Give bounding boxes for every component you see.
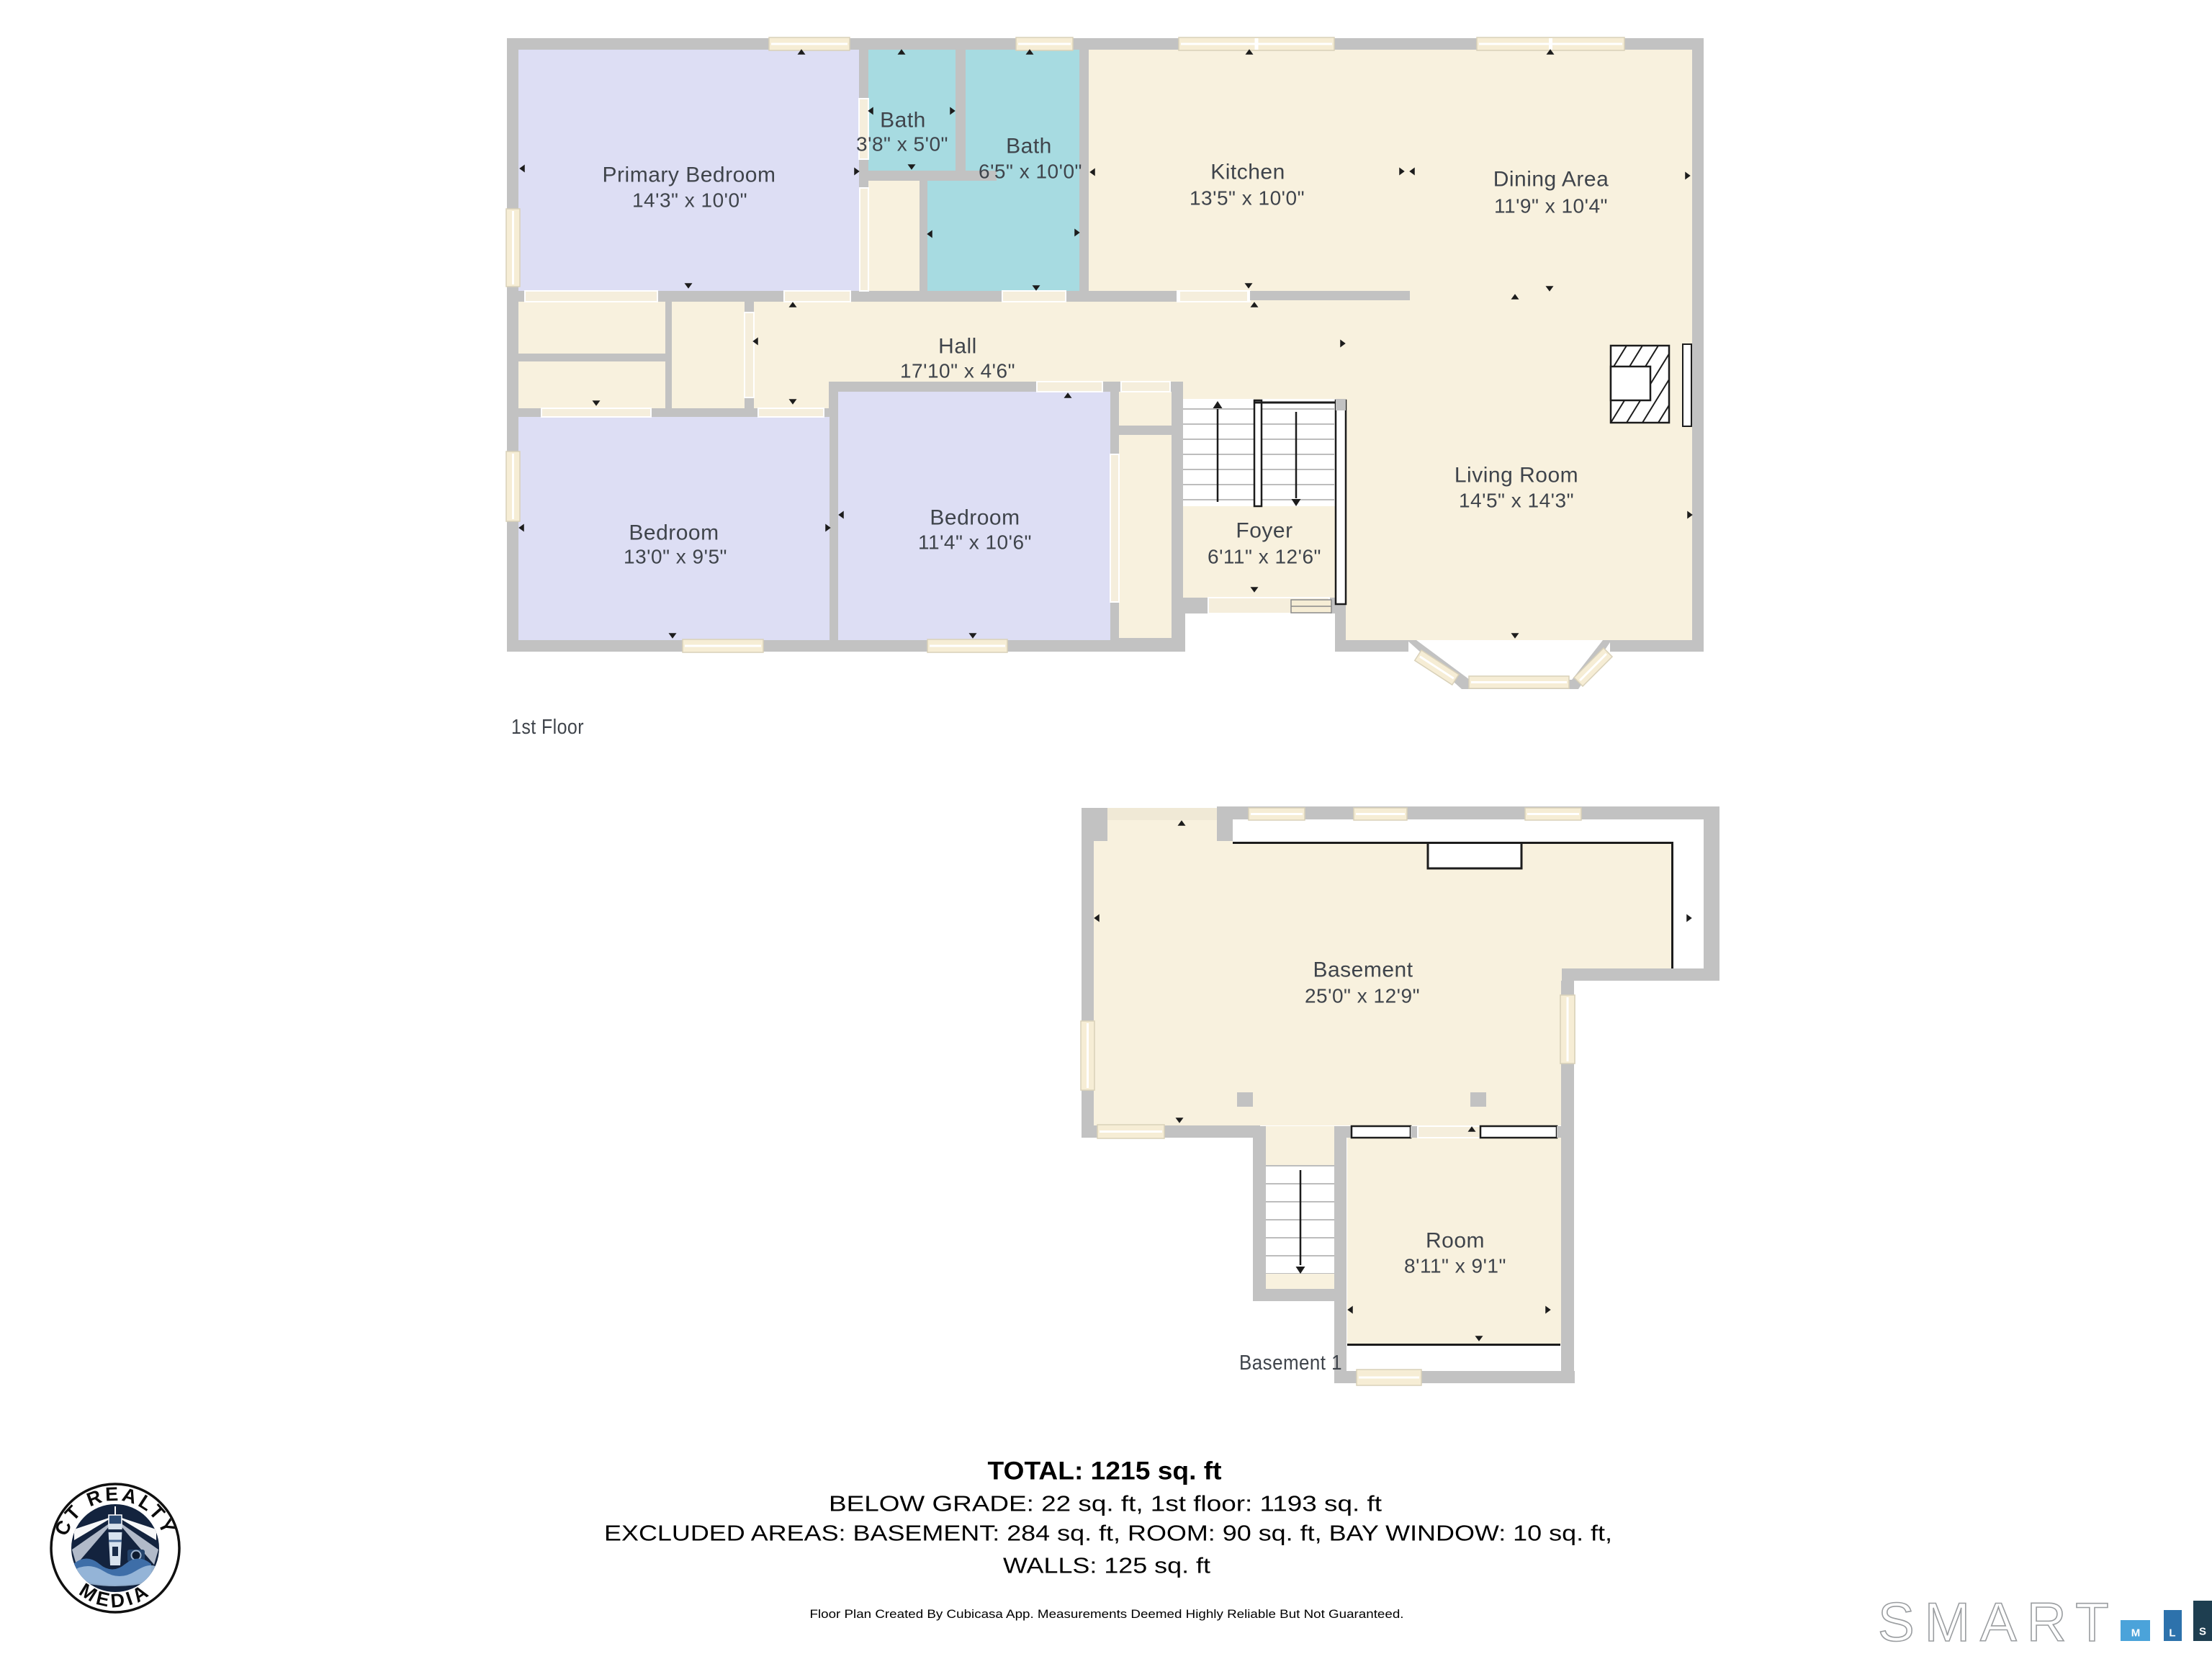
svg-text:17'10" x 4'6": 17'10" x 4'6" [900,360,1015,382]
svg-text:6'11" x 12'6": 6'11" x 12'6" [1208,546,1321,568]
svg-text:25'0" x 12'9": 25'0" x 12'9" [1305,985,1420,1007]
svg-text:Living Room: Living Room [1455,464,1578,487]
svg-text:13'0" x 9'5": 13'0" x 9'5" [624,546,727,568]
svg-text:Dining Area: Dining Area [1493,168,1609,192]
svg-text:Basement 1: Basement 1 [1239,1352,1342,1375]
svg-text:Floor Plan Created By Cubicasa: Floor Plan Created By Cubicasa App. Meas… [810,1608,1404,1621]
svg-text:11'9" x 10'4": 11'9" x 10'4" [1494,195,1608,217]
svg-text:Bath: Bath [880,109,926,132]
svg-text:13'5" x 10'0": 13'5" x 10'0" [1190,187,1305,210]
svg-text:BELOW GRADE: 22 sq. ft, 1st fl: BELOW GRADE: 22 sq. ft, 1st floor: 1193 … [829,1491,1382,1516]
svg-text:EXCLUDED AREAS: BASEMENT: 284: EXCLUDED AREAS: BASEMENT: 284 sq. ft, RO… [604,1521,1612,1546]
svg-text:6'5" x 10'0": 6'5" x 10'0" [979,161,1082,183]
svg-text:Hall: Hall [938,335,977,359]
svg-text:L: L [2169,1627,2175,1640]
svg-text:1st Floor: 1st Floor [511,716,584,739]
svg-text:8'11" x 9'1": 8'11" x 9'1" [1404,1255,1506,1277]
svg-text:11'4" x 10'6": 11'4" x 10'6" [918,531,1032,554]
svg-text:M: M [2131,1627,2141,1640]
svg-text:Foyer: Foyer [1236,519,1292,543]
svg-text:Bedroom: Bedroom [930,506,1020,530]
svg-text:TOTAL: 1215 sq. ft: TOTAL: 1215 sq. ft [988,1457,1222,1485]
svg-text:WALLS: 125 sq. ft: WALLS: 125 sq. ft [1003,1553,1210,1578]
svg-text:Bath: Bath [1006,135,1052,158]
svg-text:14'5" x 14'3": 14'5" x 14'3" [1459,490,1574,512]
svg-text:Primary Bedroom: Primary Bedroom [603,163,776,187]
svg-text:3'8" x 5'0": 3'8" x 5'0" [856,133,948,156]
svg-text:Kitchen: Kitchen [1210,161,1285,184]
svg-text:Basement: Basement [1313,958,1413,982]
svg-text:Room: Room [1426,1229,1485,1253]
svg-text:S: S [2199,1626,2206,1638]
svg-text:14'3" x 10'0": 14'3" x 10'0" [632,189,747,212]
svg-text:SMART: SMART [1878,1592,2119,1653]
svg-text:Bedroom: Bedroom [629,521,719,545]
